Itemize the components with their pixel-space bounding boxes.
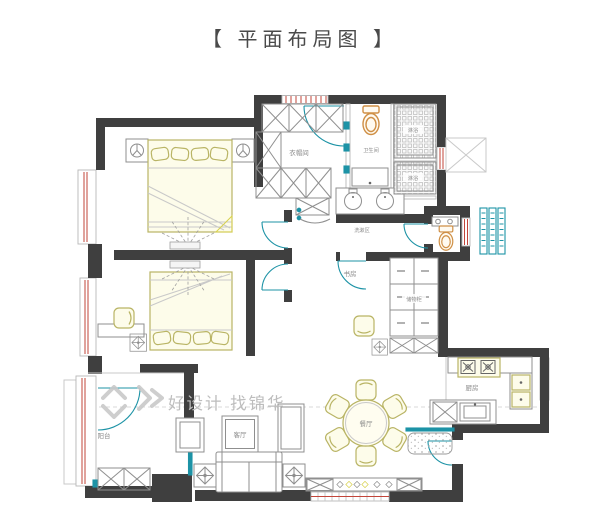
compass-symbol (372, 339, 387, 355)
entry (408, 433, 452, 454)
spec-annotation (480, 208, 505, 254)
hall-door-bottom (262, 264, 288, 290)
cloakroom-label: 衣帽间 (289, 148, 309, 157)
entry-threshold (406, 428, 454, 431)
storage-cabinet-label: 储物柜 (406, 295, 422, 303)
sofa (216, 452, 282, 492)
side-counter (510, 373, 532, 409)
hall-door-top (262, 222, 288, 248)
nightstand-lamp-icon (232, 139, 254, 162)
shower-area-bottom: 淋浴 (394, 162, 436, 194)
balcony-label: 阳台 (98, 431, 111, 440)
tv-cabinet (306, 478, 422, 491)
shower-label: 淋浴 (408, 126, 419, 134)
study: 书房 储物柜 (344, 258, 439, 355)
gas-stove (458, 358, 500, 377)
page-title: 【 平面布局图 】 (202, 28, 398, 51)
door-mat (408, 433, 452, 454)
storage-cabinet: 储物柜 (390, 258, 438, 336)
dining-chair (356, 446, 376, 466)
toilet-icon (439, 226, 453, 250)
wc-room (432, 217, 458, 250)
floor-plan-page: 【 平面布局图 】 (0, 0, 600, 532)
cloakroom: 衣帽间 (256, 104, 343, 223)
dining-room: 餐厅 (324, 380, 409, 466)
double-bed (148, 140, 232, 232)
master-bedroom (126, 139, 254, 246)
double-bed (150, 272, 232, 350)
shower-area-top: 淋浴 (394, 104, 436, 158)
toilet-icon (363, 106, 379, 135)
sink-counter (430, 400, 496, 424)
ac-platform (446, 138, 486, 172)
washing-area-label: 洗漱区 (354, 226, 370, 234)
balcony: 阳台 (98, 431, 151, 490)
bathroom-label: 卫生间 (363, 146, 379, 154)
coffee-table: 客厅 (222, 416, 258, 452)
watermark-text: 好设计 找锦华 (168, 394, 286, 413)
living-label: 客厅 (234, 430, 248, 439)
kitchen-label: 厨房 (466, 383, 479, 392)
floor-plan-drawing: 【 平面布局图 】 (0, 0, 600, 532)
armchair (176, 418, 204, 452)
kitchen: 厨房 (430, 357, 532, 424)
side-table (194, 464, 216, 487)
dining-label: 餐厅 (360, 419, 374, 428)
watermark: 好设计 找锦华 (103, 387, 286, 417)
chair (114, 308, 134, 328)
side-table (283, 464, 305, 487)
dining-chair (356, 380, 376, 400)
study-label: 书房 (344, 269, 357, 278)
chair (354, 316, 374, 336)
nightstand-lamp-icon (126, 139, 148, 162)
shower-label: 淋浴 (408, 174, 419, 182)
